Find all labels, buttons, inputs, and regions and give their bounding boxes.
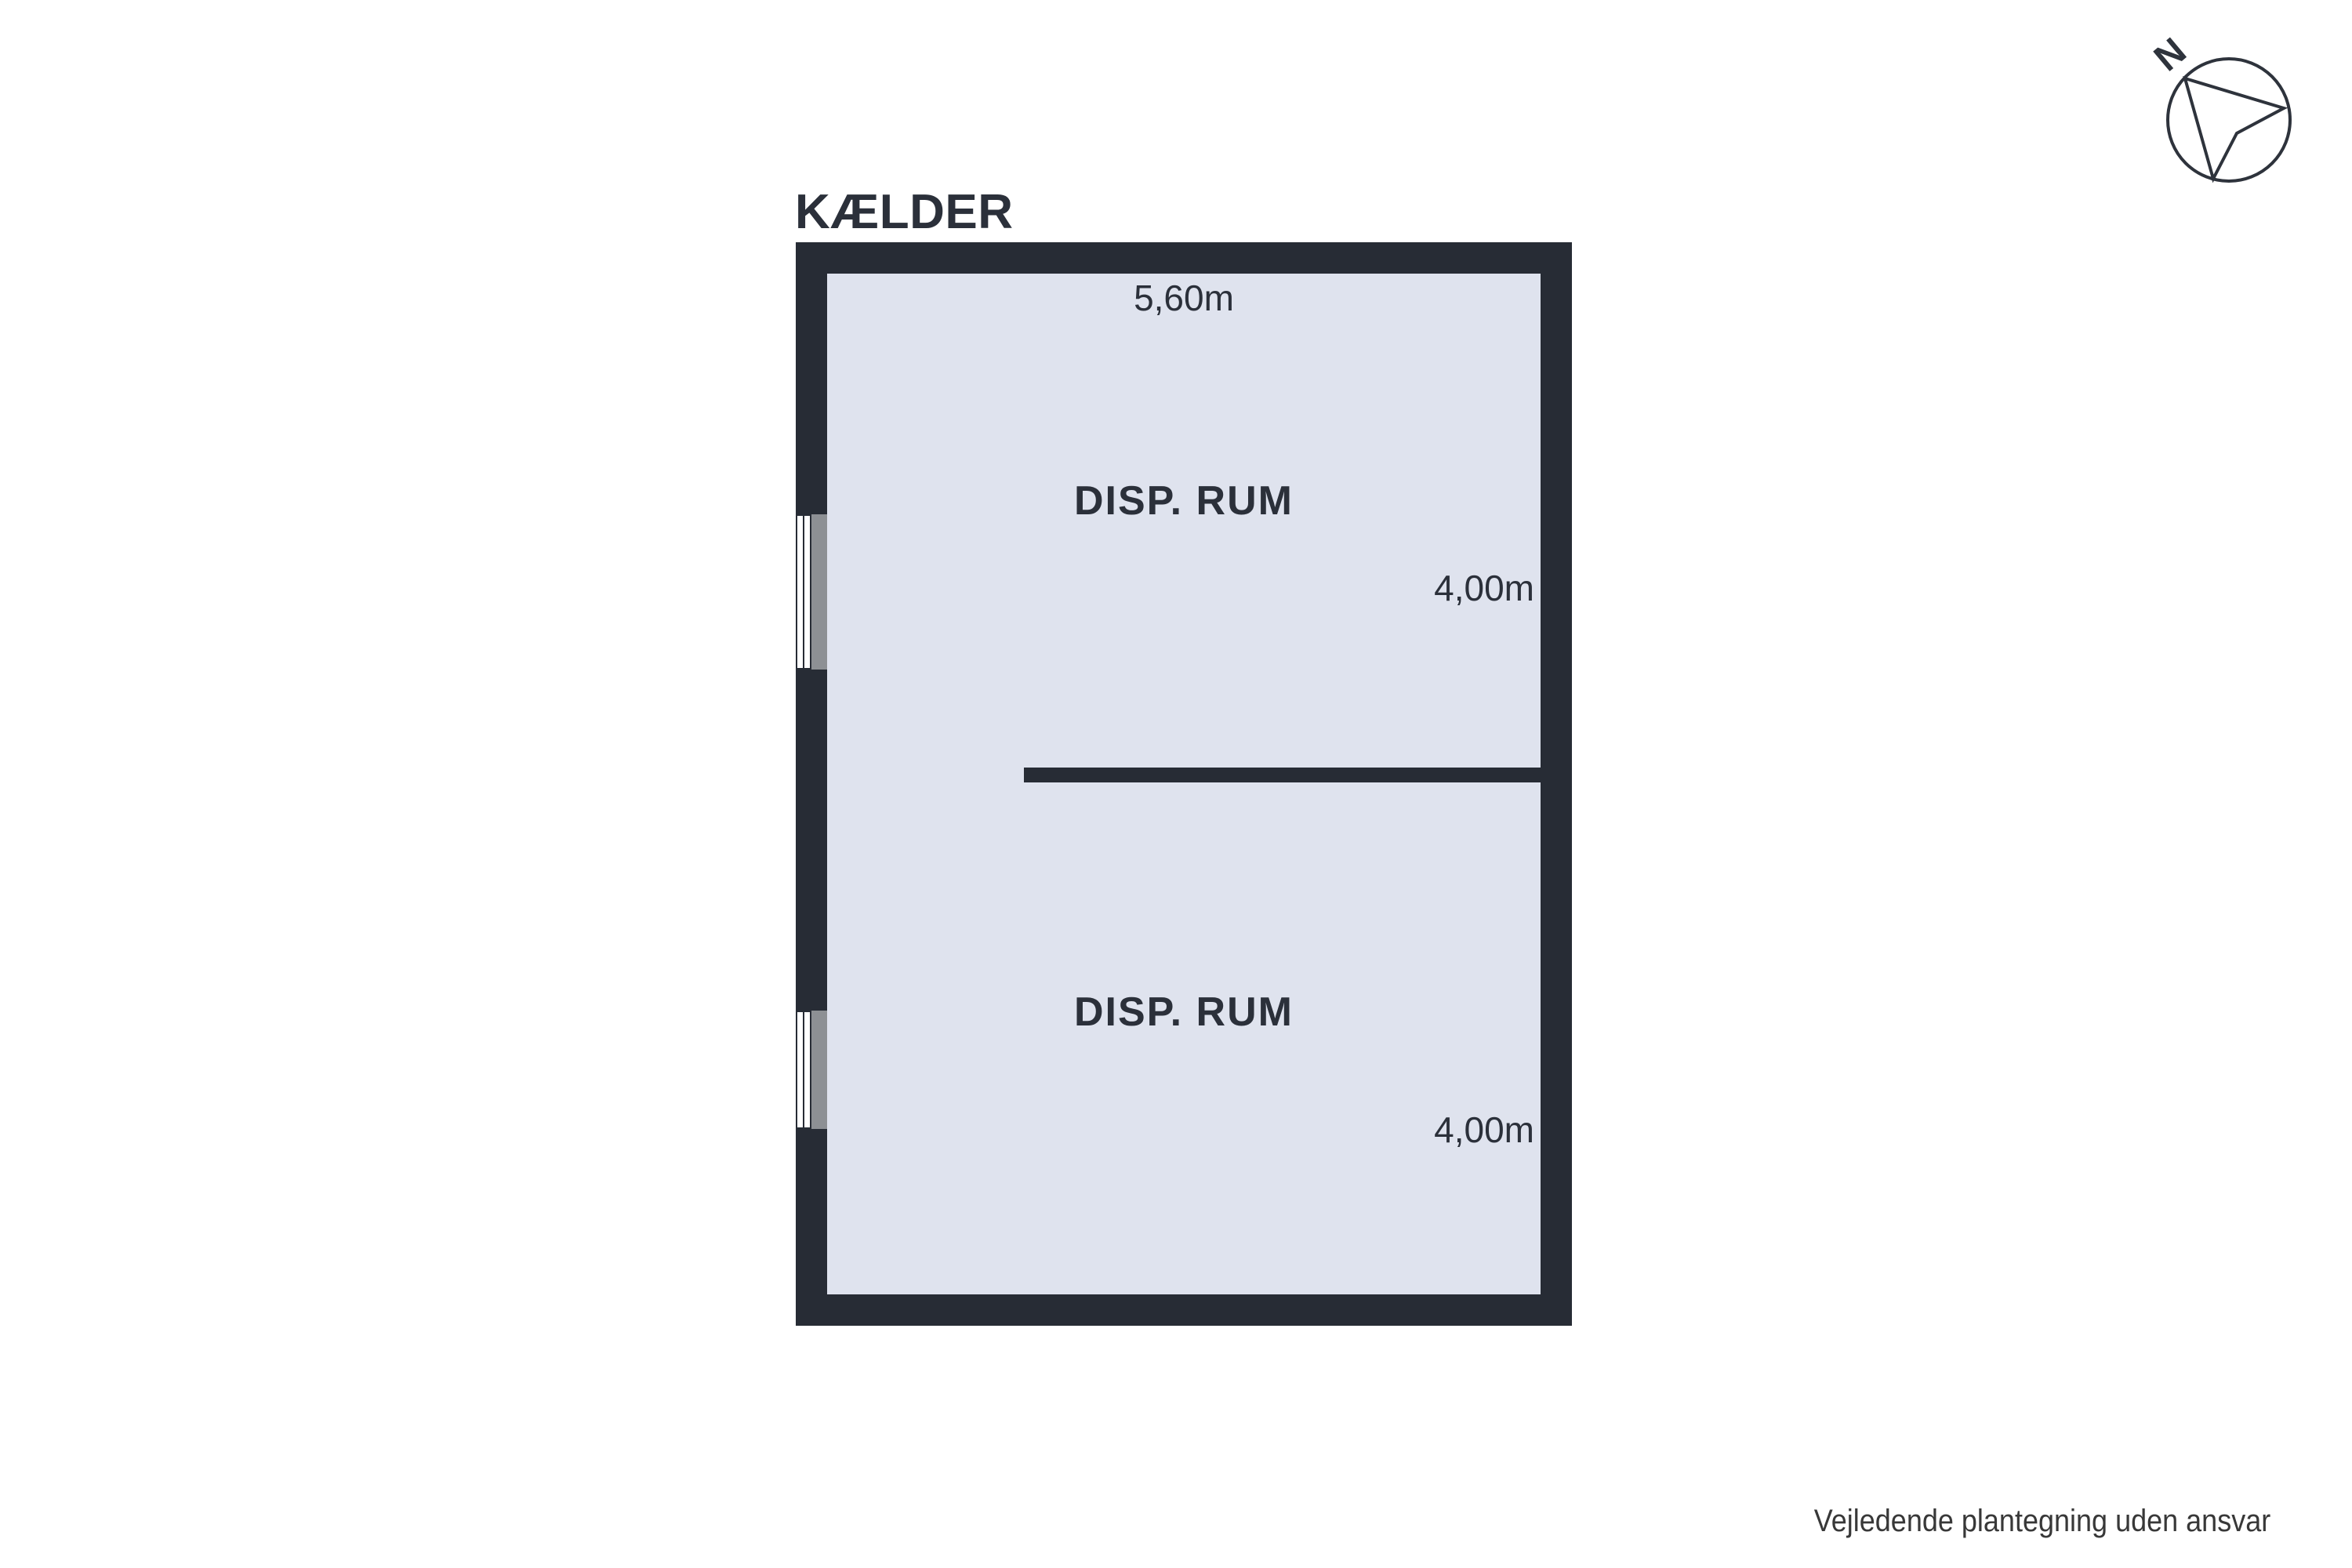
floor-area: 5,60m DISP. RUM 4,00m DISP. RUM 4,00m: [827, 274, 1541, 1294]
north-arrow-icon: N: [2144, 22, 2317, 194]
floor-plan-page: KÆLDER N 5,60m DISP. RUM 4,00m DISP. RUM…: [0, 0, 2352, 1568]
window-glazing: [796, 514, 811, 670]
compass-north-label: N: [2147, 31, 2194, 80]
room-1-width-dimension: 5,60m: [827, 280, 1541, 316]
partition-wall: [1024, 768, 1541, 782]
page-title: KÆLDER: [795, 188, 1014, 237]
disclaimer-text: Vejledende plantegning uden ansvar: [1814, 1505, 2270, 1537]
window-glazing: [796, 1011, 811, 1129]
window-mullion: [803, 516, 804, 668]
room-1-label: DISP. RUM: [827, 481, 1541, 521]
window-symbol-2: [796, 1011, 827, 1129]
room-2-depth-dimension: 4,00m: [1434, 1112, 1534, 1148]
floor-plan: 5,60m DISP. RUM 4,00m DISP. RUM 4,00m: [796, 242, 1572, 1326]
window-symbol-1: [796, 514, 827, 670]
room-2: DISP. RUM 4,00m: [827, 782, 1541, 1294]
room-2-label: DISP. RUM: [827, 992, 1541, 1033]
window-mullion: [803, 1012, 804, 1127]
window-sill: [811, 514, 827, 670]
room-1-depth-dimension: 4,00m: [1434, 570, 1534, 606]
room-1: 5,60m DISP. RUM 4,00m: [827, 274, 1541, 768]
window-sill: [811, 1011, 827, 1129]
